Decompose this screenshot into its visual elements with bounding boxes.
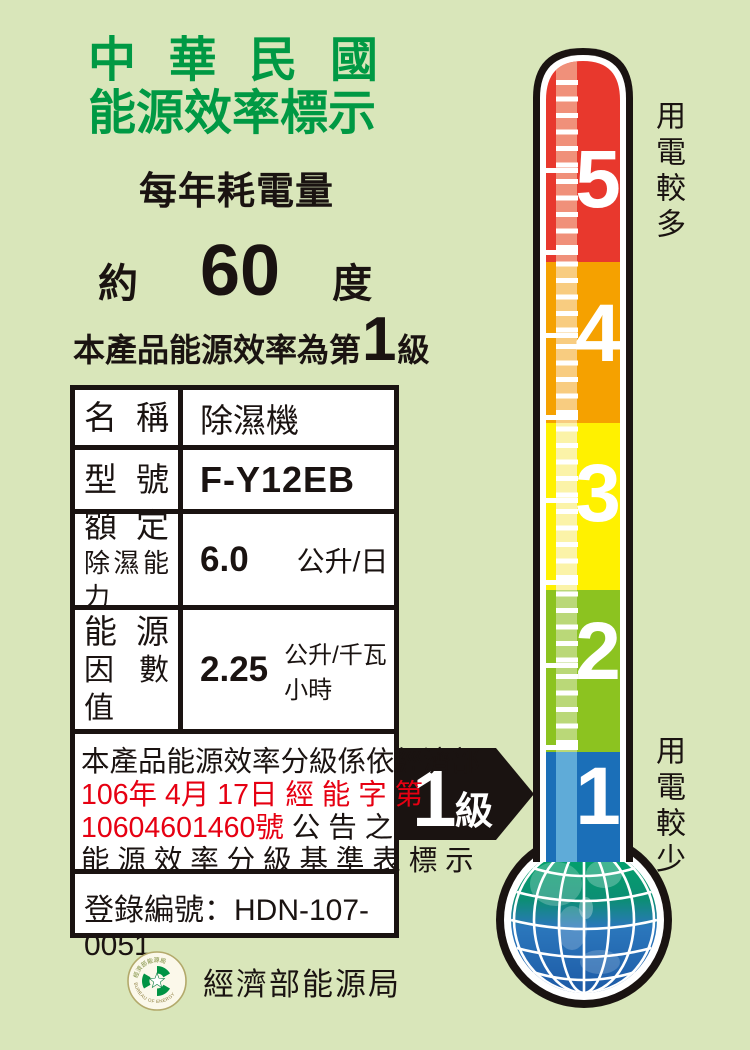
model-value: F-Y12EB [200, 459, 355, 501]
table-row-capacity: 額定 除濕能力 6.0 公升/日 [75, 514, 394, 610]
energy-factor-value: 2.25 [200, 650, 268, 690]
kwh-value: 60 [200, 238, 280, 304]
model-label: 型號 [84, 460, 169, 500]
capacity-label-line1: 額定 [84, 506, 169, 546]
grade-big-number: 1 [362, 313, 396, 368]
level-1-highlight [556, 752, 577, 862]
title-line2: 能源效率標示 [88, 88, 380, 140]
grade-sentence-prefix: 本產品能源效率為第 [73, 333, 361, 368]
notice-line3-black: 公 告 之 [284, 812, 393, 844]
capacity-label-line2: 除濕能力 [84, 546, 169, 614]
energy-factor-unit: 公升/千瓦小時 [284, 635, 394, 705]
table-row-registration: 登錄編號：HDN-107-0051 [75, 874, 394, 933]
level-1-number: 1 [575, 751, 621, 842]
uses-less-power-label: 用電較少 [645, 735, 689, 879]
level-5-number: 5 [575, 134, 621, 225]
approx-text: 約 [98, 264, 138, 304]
bureau-of-energy-logo: 經濟部能源局 BUREAU OF ENERGY [127, 951, 187, 1011]
footer: 經濟部能源局 BUREAU OF ENERGY 經濟部能源局 [127, 951, 401, 1011]
capacity-value: 6.0 [200, 540, 249, 580]
table-row-model: 型號 F-Y12EB [75, 450, 394, 514]
kwh-unit: 度 [332, 264, 372, 304]
label-title: 中華民國 能源效率標示 [88, 34, 380, 140]
energy-factor-label-line1: 能源 [84, 612, 169, 652]
table-row-name: 名稱 除濕機 [75, 390, 394, 450]
grade-sentence: 本產品能源效率為第 1 級 [73, 308, 430, 368]
annual-consumption-heading: 每年耗電量 [139, 160, 334, 215]
grade-sentence-suffix: 級 [398, 333, 430, 368]
capacity-unit: 公升/日 [297, 540, 389, 580]
table-row-notice: 本產品能源效率分級係依經濟部 106年 4月 17日 經 能 字 第 10604… [75, 734, 394, 874]
notice-line3-red: 10604601460號 [81, 812, 284, 844]
energy-efficiency-label: 5 4 3 2 1 1 級 中華民國 能源效率標示 每年耗電量 約 60 度 本… [0, 0, 750, 1050]
uses-more-power-label: 用電較多 [645, 100, 689, 244]
notice-line2-red: 106年 4月 17日 經 能 字 第 [81, 779, 423, 811]
thermometer-tube: 5 4 3 2 1 [533, 48, 633, 862]
registration-label: 登錄編號： [84, 894, 234, 927]
spec-table: 名稱 除濕機 型號 F-Y12EB 額定 除濕能力 6.0 公升/日 能源 因數… [70, 385, 399, 938]
energy-factor-label-line2: 因數值 [84, 652, 169, 728]
arrow-grade-suffix: 級 [455, 791, 493, 833]
notice-line4: 能 源 效 率 分 級 基 準 表 標 示 [81, 845, 474, 877]
level-4-number: 4 [575, 288, 621, 379]
title-line1: 中華民國 [88, 34, 380, 88]
name-value: 除濕機 [200, 394, 299, 442]
annual-consumption-value: 約 60 度 [98, 236, 372, 304]
notice-line1: 本產品能源效率分級係依經濟部 [81, 746, 480, 778]
table-row-energy-factor: 能源 因數值 2.25 公升/千瓦小時 [75, 610, 394, 734]
agency-name: 經濟部能源局 [203, 959, 401, 1004]
name-label: 名稱 [84, 398, 169, 438]
level-2-number: 2 [575, 606, 621, 697]
globe-grid [511, 847, 657, 993]
level-3-number: 3 [575, 448, 621, 539]
